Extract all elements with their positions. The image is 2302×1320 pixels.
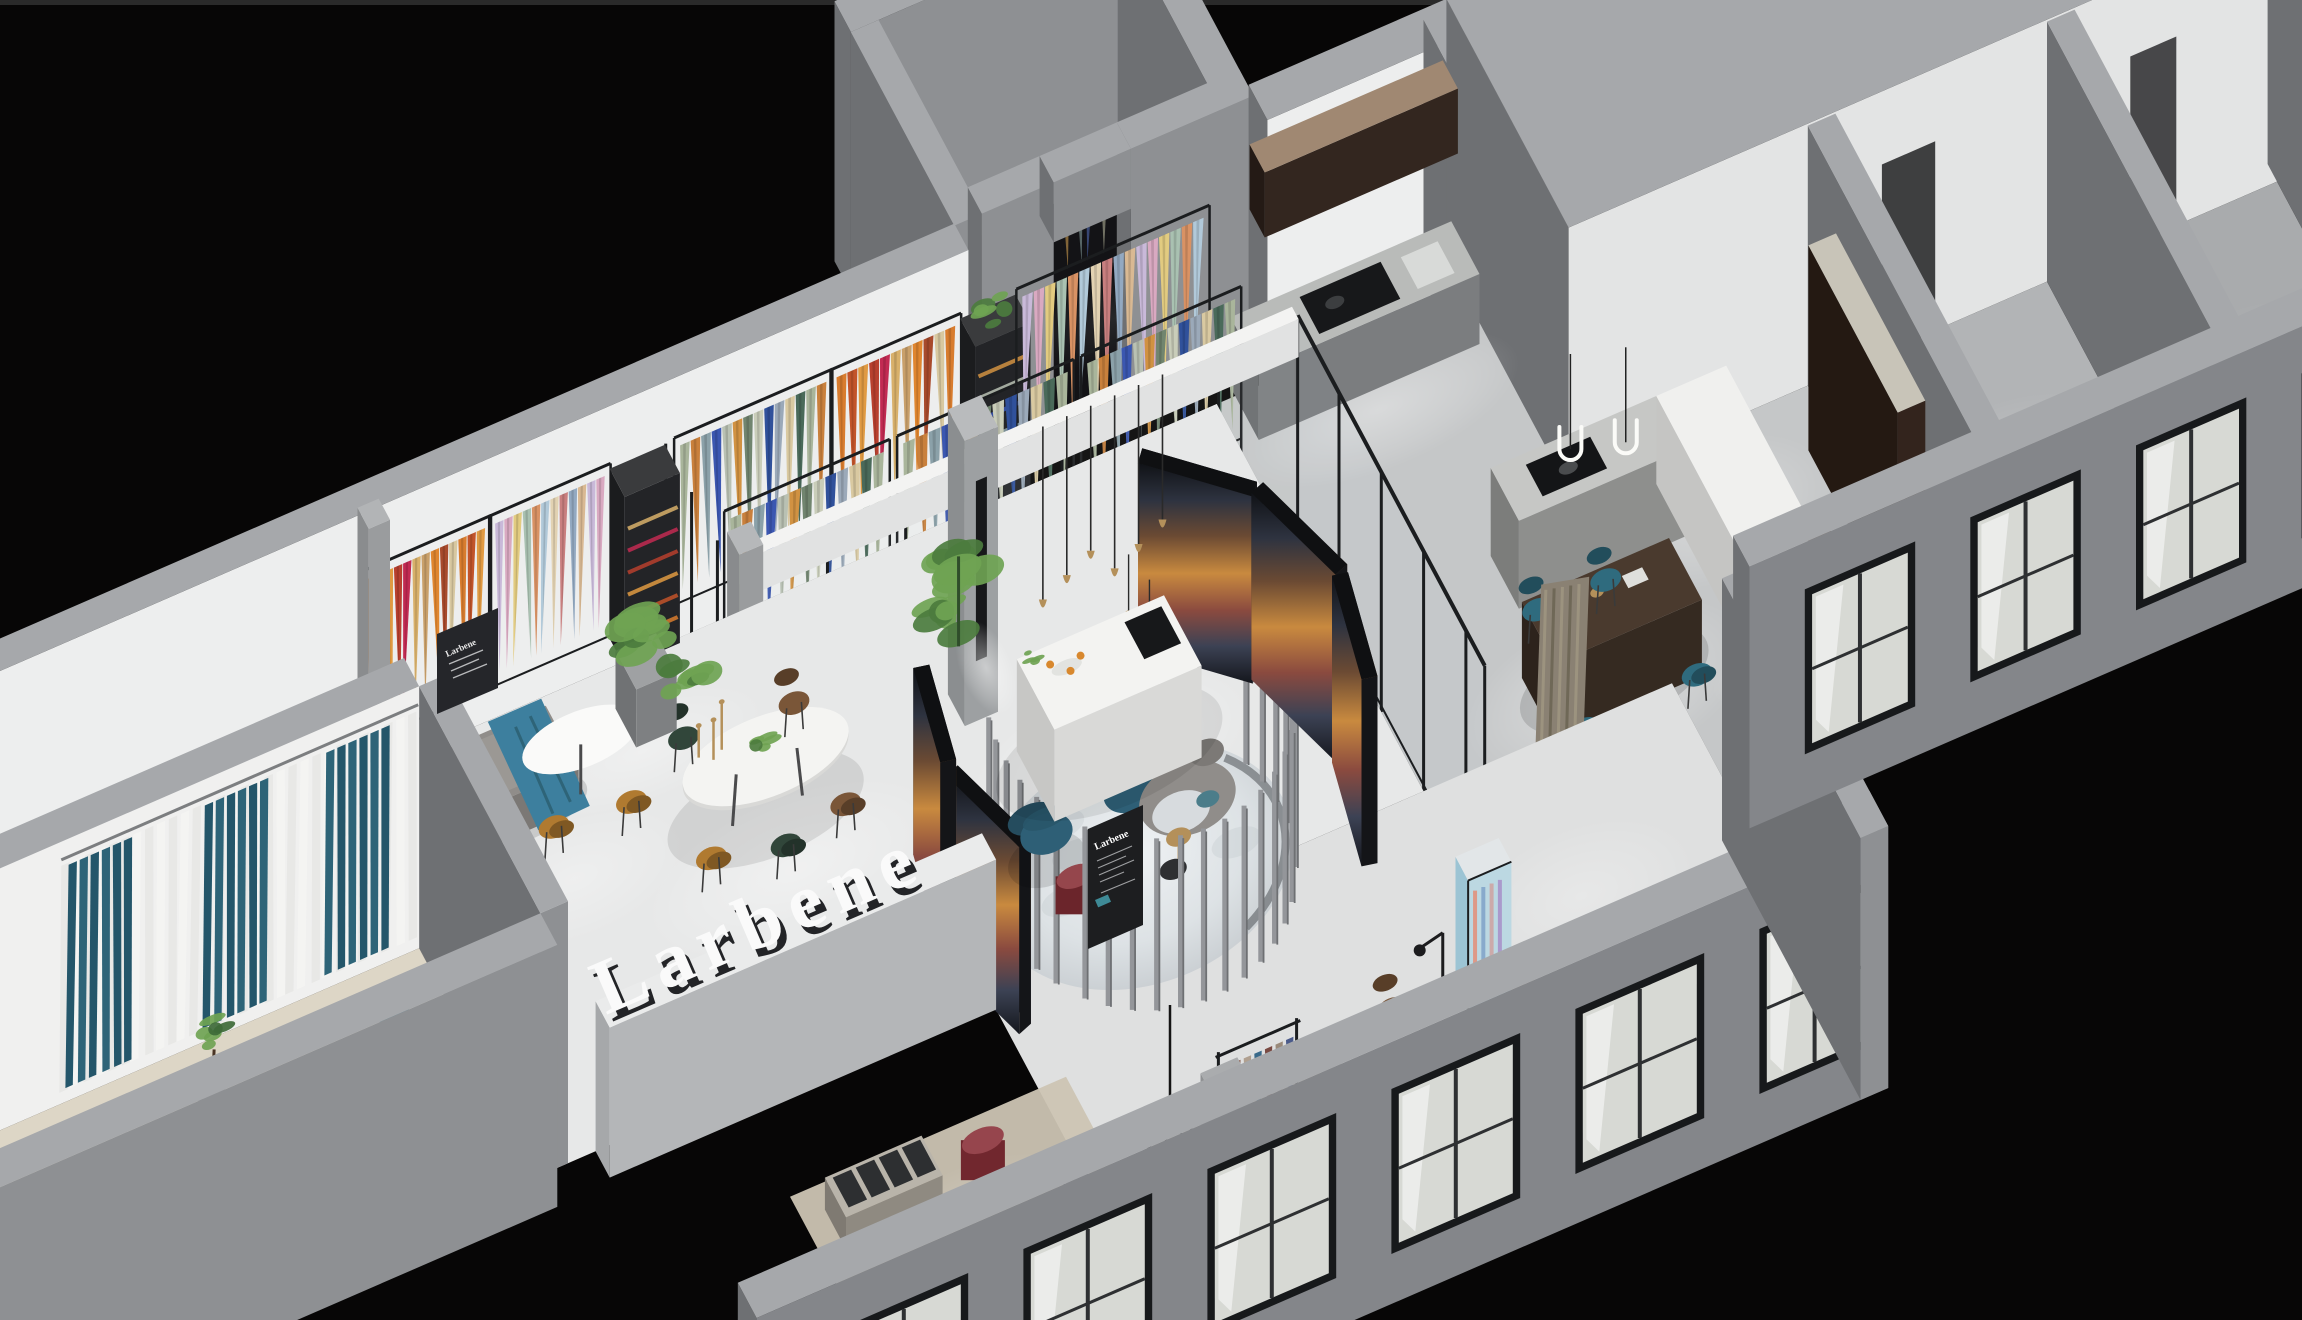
display-board-panel (1088, 805, 1143, 949)
scene-canvas: Larbene Larbene Larbene Larbene (0, 0, 2302, 1320)
display-board: Larbene (1088, 805, 1143, 949)
showroom-3d-render: Larbene Larbene Larbene Larbene (0, 0, 2302, 1320)
